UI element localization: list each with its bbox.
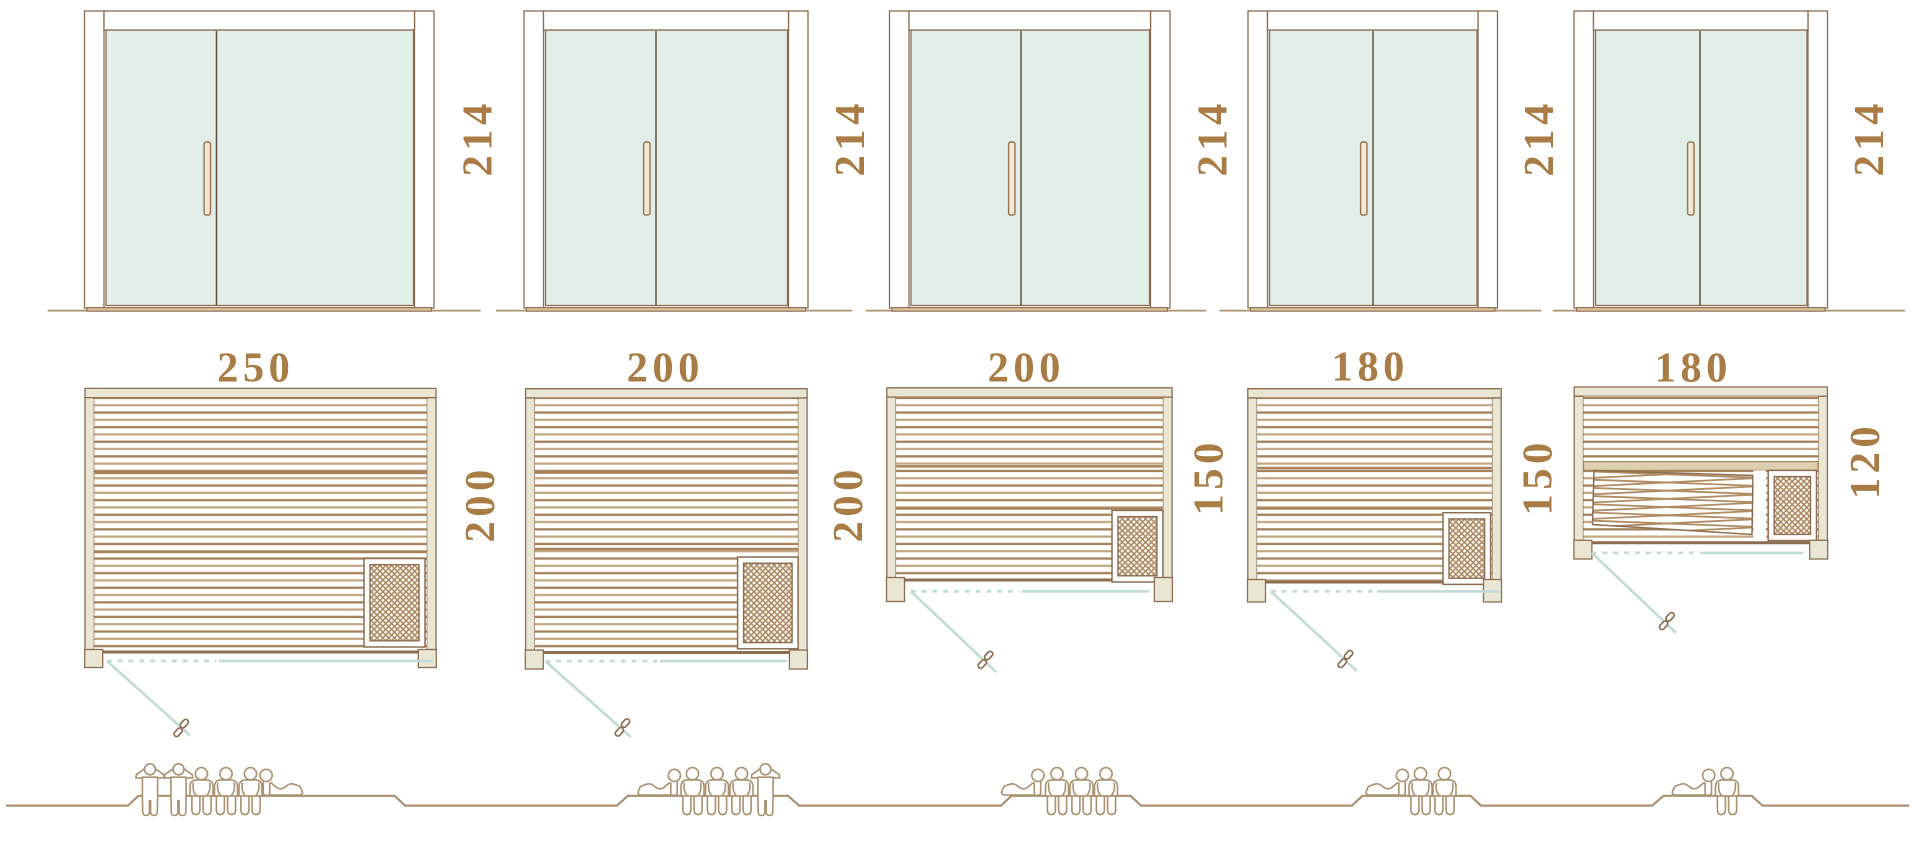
svg-text:150: 150 xyxy=(1515,438,1562,515)
svg-text:250: 250 xyxy=(217,345,294,392)
svg-text:180: 180 xyxy=(1332,344,1409,391)
svg-text:200: 200 xyxy=(627,345,704,392)
svg-text:200: 200 xyxy=(457,465,504,542)
svg-text:214: 214 xyxy=(1846,99,1893,176)
svg-text:150: 150 xyxy=(1186,438,1233,515)
svg-text:214: 214 xyxy=(455,99,502,176)
svg-text:214: 214 xyxy=(1516,99,1563,176)
svg-text:214: 214 xyxy=(1190,99,1237,176)
svg-text:200: 200 xyxy=(825,465,872,542)
svg-text:180: 180 xyxy=(1655,345,1732,392)
svg-text:120: 120 xyxy=(1842,422,1889,499)
svg-text:200: 200 xyxy=(988,345,1065,392)
svg-text:214: 214 xyxy=(827,99,874,176)
